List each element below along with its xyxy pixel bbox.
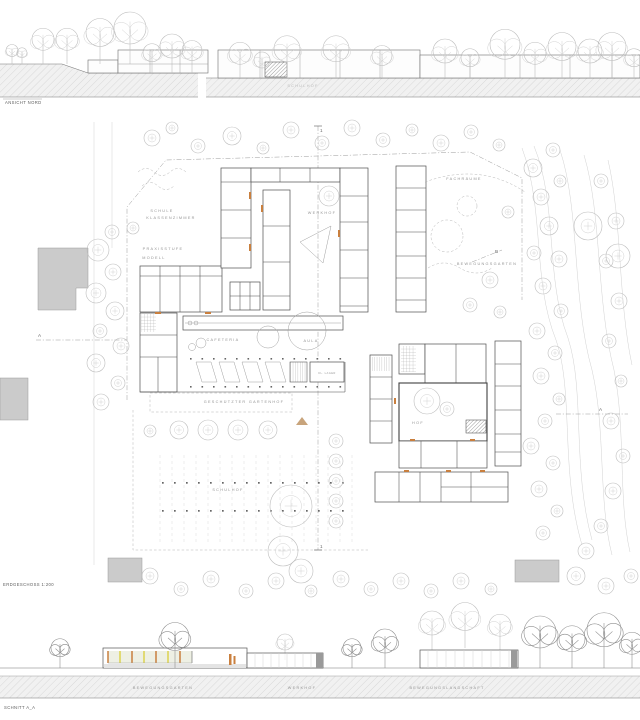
section-drawing bbox=[0, 603, 640, 699]
plan-title: ERDGESCHOSS 1:200 bbox=[3, 582, 54, 587]
label-schulhof: SCHULHOF bbox=[212, 488, 243, 492]
label-aula: AULA bbox=[303, 339, 318, 343]
north-elevation bbox=[0, 12, 640, 99]
label-fachraeume: FACHRÄUME bbox=[446, 177, 482, 181]
section-label-bewegungsgarten: BEWEGUNGSGARTEN bbox=[133, 686, 193, 690]
marker-b: B bbox=[495, 249, 498, 254]
label-werkhof: WERKHOF bbox=[308, 211, 337, 215]
label-schule: SCHULE bbox=[150, 209, 173, 213]
marker-1-bottom: 1 bbox=[320, 544, 323, 549]
marker-a-right: A bbox=[599, 407, 603, 412]
architectural-sheet: ANSICHT NORD SCHULHOF SCHULE KLASSENZIMM… bbox=[0, 0, 640, 720]
label-gartenhof: GESCHÜTZTER GARTENHOF bbox=[204, 400, 285, 404]
ground-floor-plan bbox=[0, 120, 638, 598]
label-cafeteria: CAFETERIA bbox=[206, 338, 239, 342]
label-praxisstufe: PRAXISSTUFE bbox=[143, 247, 184, 251]
marker-1-top: 1 bbox=[320, 128, 323, 133]
elevation-title: ANSICHT NORD bbox=[5, 100, 42, 105]
label-klassenzimmer: KLASSENZIMMER bbox=[146, 216, 195, 220]
section-title: SCHNITT A_A bbox=[4, 705, 35, 710]
label-modell: MODELL bbox=[142, 256, 165, 260]
label-bewegungsgarten: BEWEGUNGSGARTEN bbox=[457, 262, 517, 266]
marker-a-left: A bbox=[38, 333, 42, 338]
elevation-annotation: SCHULHOF bbox=[287, 84, 318, 88]
section-label-werkhof: WERKHOF bbox=[288, 686, 317, 690]
drawing-canvas: ANSICHT NORD SCHULHOF SCHULE KLASSENZIMM… bbox=[0, 0, 640, 720]
label-hof: HOF bbox=[412, 421, 424, 425]
label-kl-lager: KL. LAGER bbox=[318, 371, 336, 375]
section-label-bewegungslandschaft: BEWEGUNGSLANDSCHAFT bbox=[409, 686, 484, 690]
